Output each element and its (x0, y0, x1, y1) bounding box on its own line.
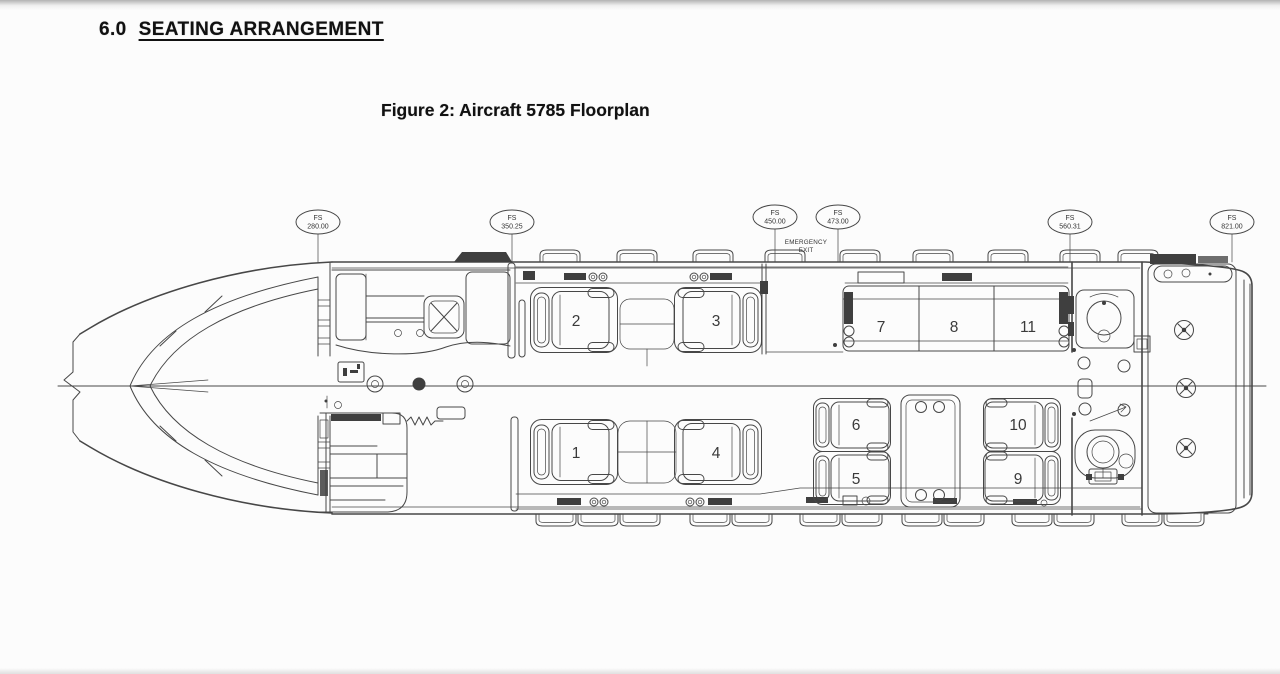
seat-7-number: 7 (877, 319, 886, 336)
table-forward-bottom (618, 421, 676, 483)
tie-down-fittings (1175, 321, 1196, 458)
scan-artifact-top (0, 0, 1280, 10)
club-table (901, 395, 960, 507)
svg-text:473.00: 473.00 (827, 219, 849, 226)
seat-5: 5 (814, 452, 891, 505)
emergency-exit-label: EMERGENCY EXIT (785, 239, 828, 254)
seat-3: 3 (675, 288, 762, 353)
seat-10: 10 (984, 399, 1061, 452)
seat-6: 6 (814, 399, 891, 452)
seat-2: 2 (531, 288, 618, 353)
baggage-compartment (1148, 254, 1236, 513)
lavatory-sink (1076, 290, 1134, 348)
baggage-handrail (1154, 266, 1232, 282)
section-number: 6.0 (99, 19, 127, 40)
cockpit-windshield (130, 262, 330, 513)
cabin-windows-top (536, 250, 1162, 262)
svg-text:FS: FS (1066, 215, 1075, 222)
svg-text:EMERGENCY: EMERGENCY (785, 239, 828, 246)
galley (332, 252, 512, 382)
document-page: { "page": { "section_number": "6.0", "se… (0, 0, 1280, 674)
svg-text:FS: FS (508, 215, 517, 222)
station-fs-821: FS 821.00 (1210, 210, 1254, 262)
svg-text:280.00: 280.00 (307, 224, 329, 231)
seat-11-number: 11 (1020, 319, 1036, 336)
svg-text:560.31: 560.31 (1059, 224, 1081, 231)
svg-text:5: 5 (852, 471, 861, 488)
seat-1: 1 (531, 420, 618, 485)
seat-4: 4 (675, 420, 762, 485)
cabin-windows-bottom (532, 514, 1208, 526)
svg-text:6: 6 (852, 417, 861, 434)
svg-text:FS: FS (771, 210, 780, 217)
svg-text:4: 4 (712, 445, 721, 462)
station-fs-280: FS 280.00 (296, 210, 340, 263)
baggage-door-hatch-marks (1150, 254, 1196, 264)
lavatory-toilet (1075, 430, 1135, 484)
lavatory (1068, 262, 1150, 515)
scan-artifact-bottom (0, 668, 1280, 674)
placard (338, 362, 364, 382)
svg-text:1: 1 (572, 445, 581, 462)
floor-panel (437, 407, 465, 419)
entry-airstair-door (320, 396, 465, 512)
svg-text:FS: FS (314, 215, 323, 222)
lavatory-fixtures (1072, 348, 1130, 421)
seat-9: 9 (984, 452, 1061, 505)
svg-text:3: 3 (712, 313, 721, 330)
galley-service-door (454, 252, 512, 262)
svg-text:10: 10 (1009, 417, 1027, 434)
divan-seats: 7 8 11 (843, 286, 1069, 351)
galley-sink (424, 296, 464, 338)
svg-text:EXIT: EXIT (799, 247, 814, 254)
svg-text:9: 9 (1014, 471, 1023, 488)
aisle-floor-fittings (367, 376, 473, 392)
svg-text:350.25: 350.25 (501, 224, 523, 231)
svg-text:FS: FS (834, 210, 843, 217)
svg-text:821.00: 821.00 (1221, 224, 1243, 231)
table-forward-top (620, 299, 674, 366)
station-fs-560: FS 560.31 (1048, 210, 1092, 262)
svg-text:FS: FS (1228, 215, 1237, 222)
section-heading: 6.0SEATING ARRANGEMENT (99, 19, 384, 41)
seat-8-number: 8 (950, 319, 959, 336)
svg-text:2: 2 (572, 313, 581, 330)
svg-text:450.00: 450.00 (764, 219, 786, 226)
figure-caption: Figure 2: Aircraft 5785 Floorplan (381, 100, 650, 121)
section-title: SEATING ARRANGEMENT (139, 19, 384, 40)
aircraft-floorplan-drawing: 2 3 1 4 7 8 11 6 5 (40, 200, 1275, 545)
